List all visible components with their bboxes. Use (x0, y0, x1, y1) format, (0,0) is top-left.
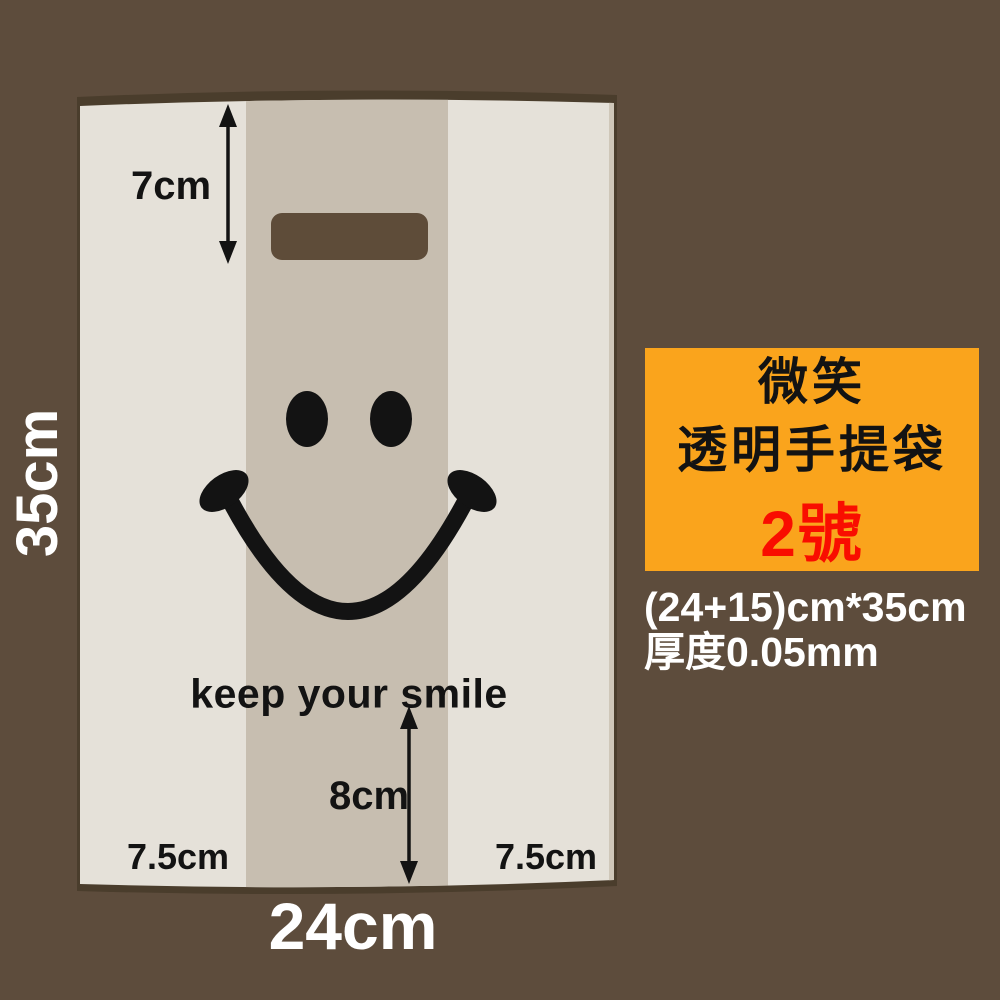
product-title-line1: 微笑 (645, 357, 979, 407)
spec-thickness-text: 厚度0.05mm (644, 630, 967, 675)
product-size-label: 2號 (645, 502, 979, 566)
product-specs: (24+15)cm*35cm 厚度0.05mm (644, 585, 967, 675)
bag-print-slogan: keep your smile (190, 674, 507, 715)
product-infographic: 7cm 35cm keep your smile 8cm 7.5cm 7.5cm… (0, 0, 1000, 1000)
product-title-line2: 透明手提袋 (645, 425, 979, 475)
dimension-label-bottom-gusset: 8cm (329, 776, 409, 816)
dimension-label-side-gusset-right: 7.5cm (495, 839, 597, 875)
dimension-label-handle-height: 7cm (131, 166, 211, 206)
dimension-label-bag-width: 24cm (269, 893, 438, 959)
dimension-label-side-gusset-left: 7.5cm (127, 839, 229, 875)
smiley-left-eye (286, 391, 328, 447)
smiley-right-eye (370, 391, 412, 447)
bag-right-edge-shade (609, 90, 614, 902)
spec-size-text: (24+15)cm*35cm (644, 585, 967, 630)
dimension-label-bag-height: 35cm (9, 409, 67, 557)
product-info-card: 微笑 透明手提袋 2號 (645, 348, 979, 571)
handle-cutout-hole (271, 213, 428, 260)
